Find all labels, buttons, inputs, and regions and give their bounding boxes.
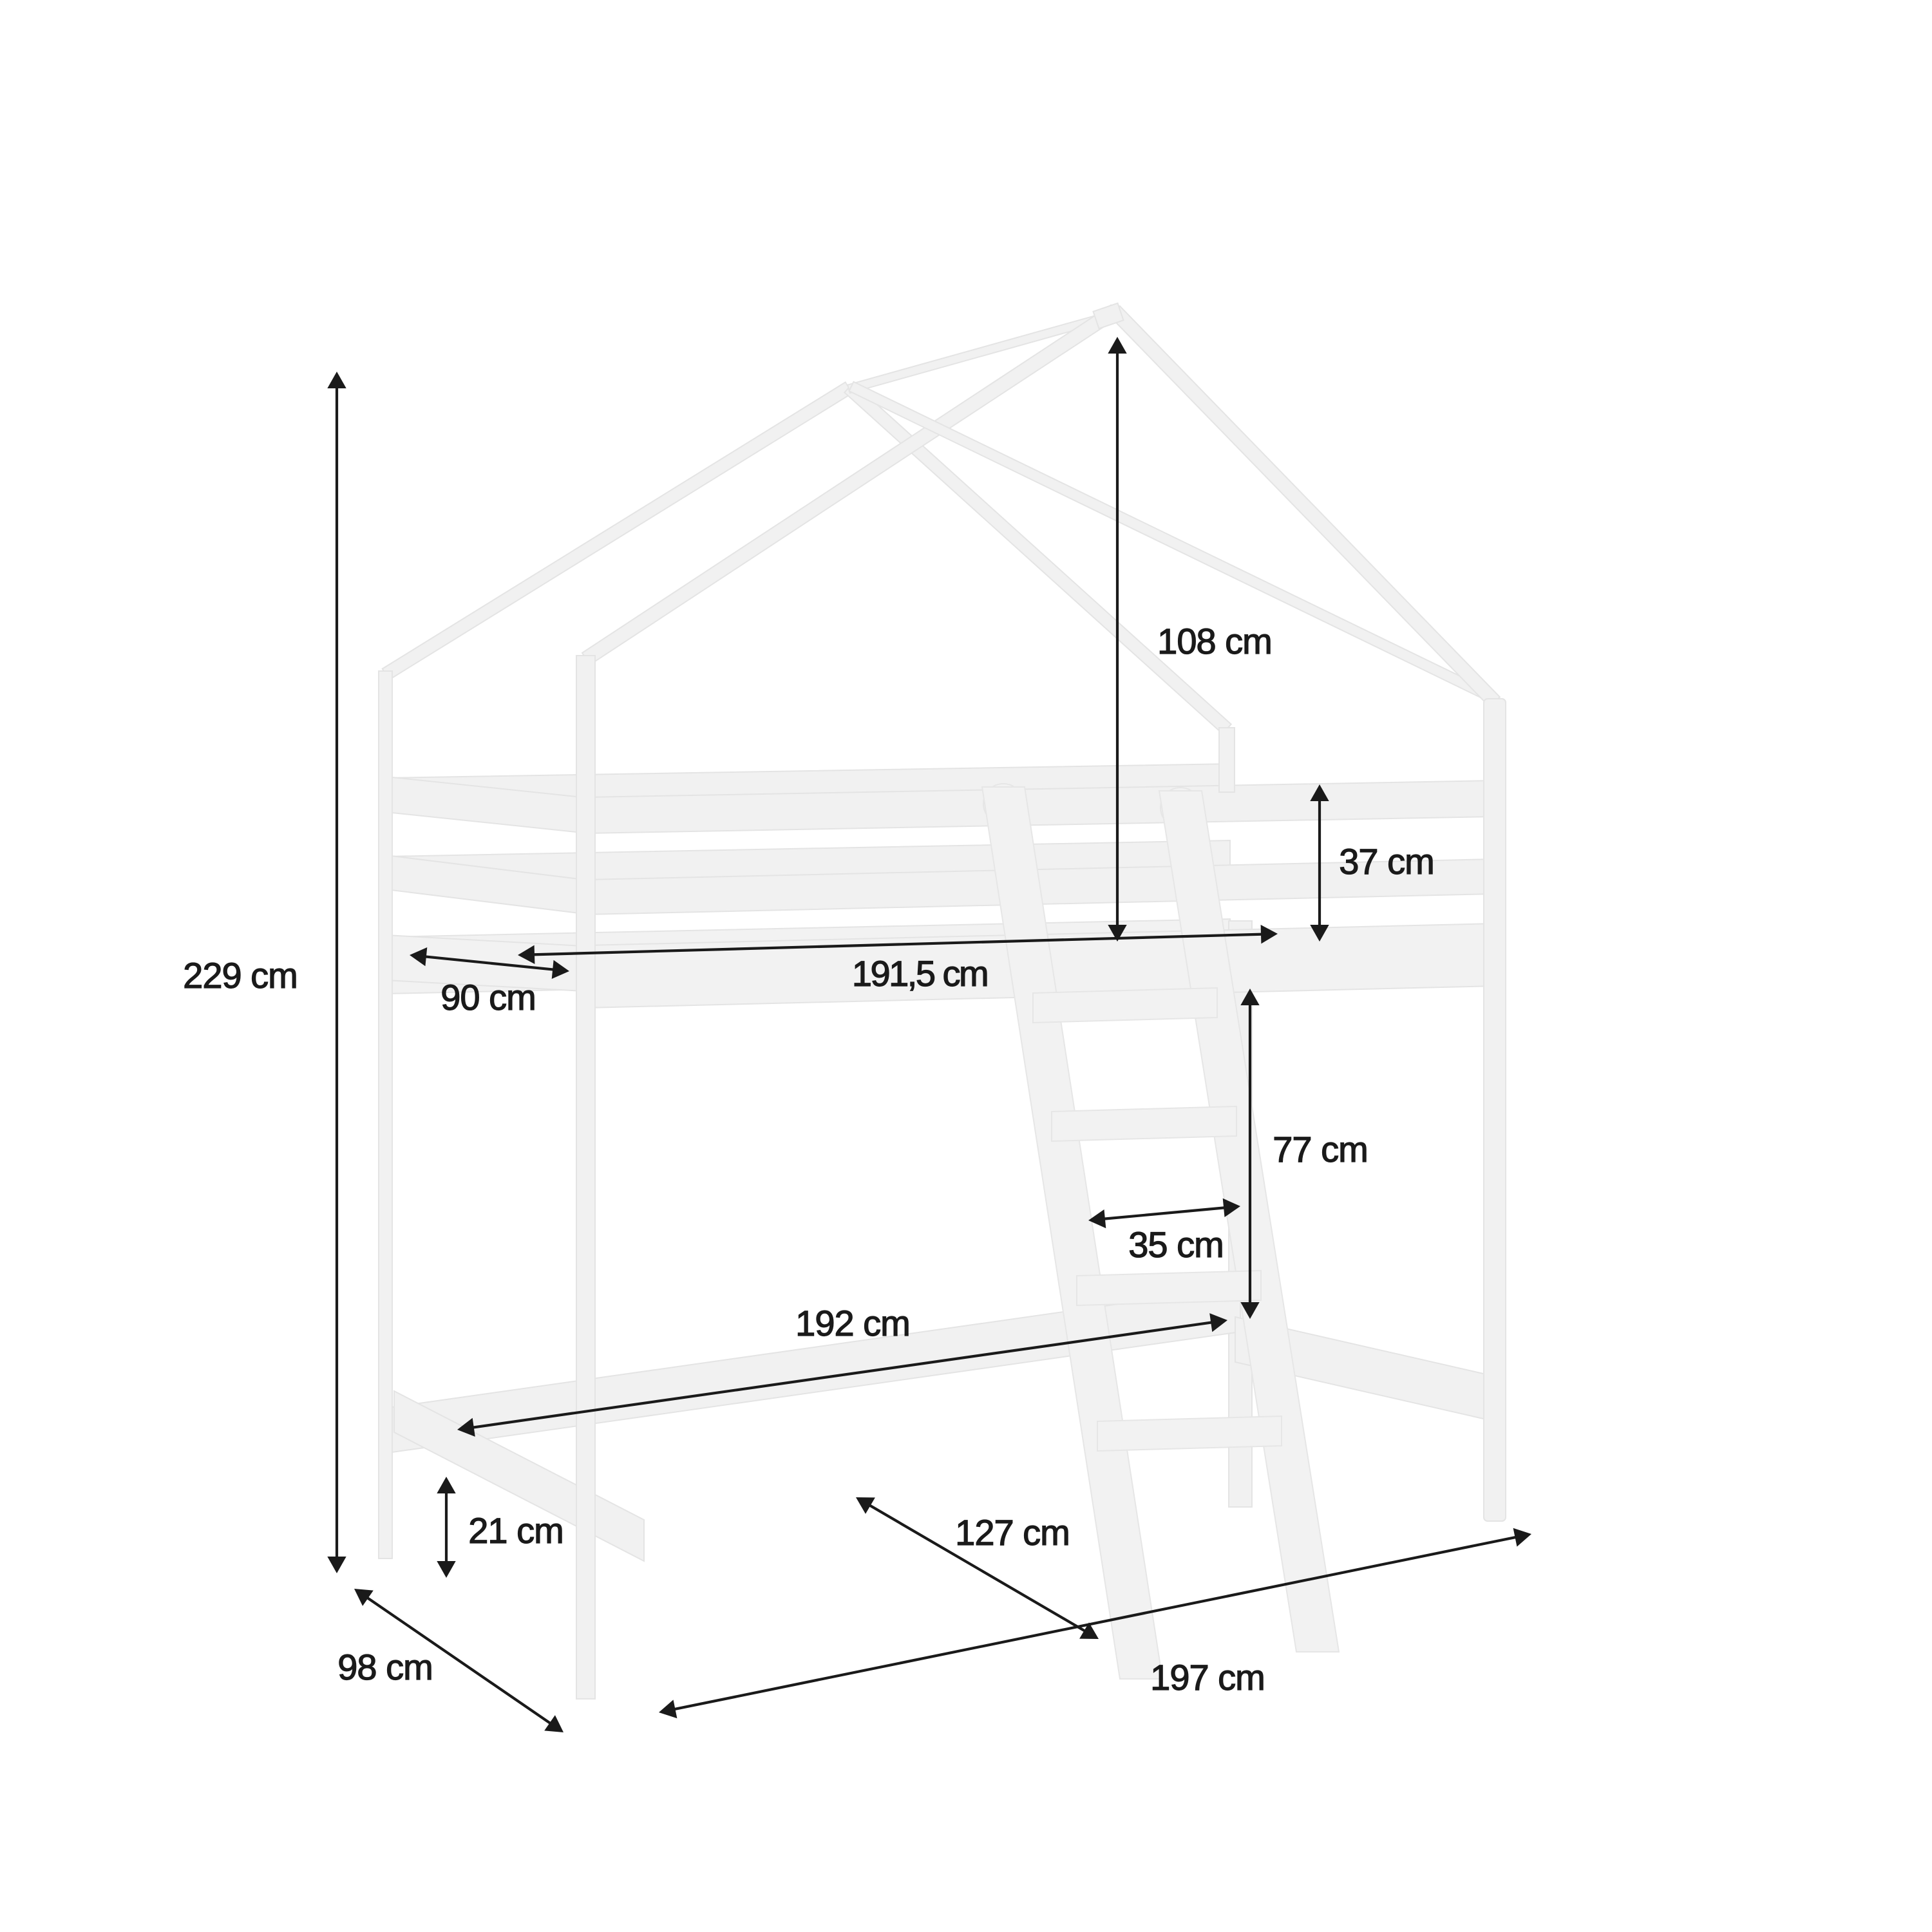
svg-text:90 cm: 90 cm <box>440 977 536 1018</box>
svg-text:21 cm: 21 cm <box>468 1510 563 1551</box>
svg-text:98 cm: 98 cm <box>337 1647 433 1687</box>
svg-text:191,5 cm: 191,5 cm <box>852 953 987 994</box>
svg-text:35 cm: 35 cm <box>1128 1224 1224 1265</box>
svg-text:197 cm: 197 cm <box>1150 1657 1265 1698</box>
svg-text:192 cm: 192 cm <box>795 1303 910 1343</box>
svg-text:77 cm: 77 cm <box>1273 1129 1368 1170</box>
svg-text:108 cm: 108 cm <box>1157 621 1272 661</box>
svg-text:127 cm: 127 cm <box>955 1512 1070 1553</box>
svg-text:37 cm: 37 cm <box>1339 841 1434 882</box>
svg-text:229 cm: 229 cm <box>183 955 298 996</box>
